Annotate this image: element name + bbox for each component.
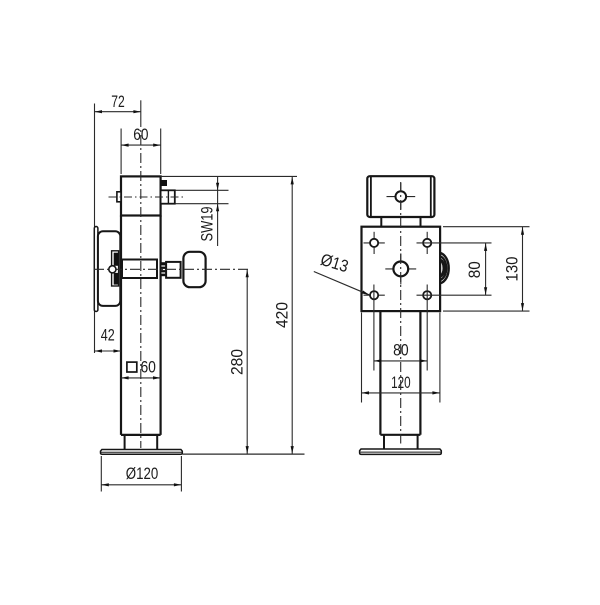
svg-text:42: 42	[101, 326, 115, 345]
svg-text:280: 280	[228, 349, 247, 375]
svg-text:80: 80	[465, 261, 484, 278]
svg-text:Ø13: Ø13	[318, 250, 350, 276]
svg-text:60: 60	[140, 358, 156, 377]
svg-text:Ø120: Ø120	[126, 464, 159, 483]
svg-text:130: 130	[503, 257, 522, 282]
svg-text:420: 420	[273, 302, 292, 328]
svg-text:SW19: SW19	[198, 207, 217, 242]
svg-text:72: 72	[111, 92, 125, 111]
